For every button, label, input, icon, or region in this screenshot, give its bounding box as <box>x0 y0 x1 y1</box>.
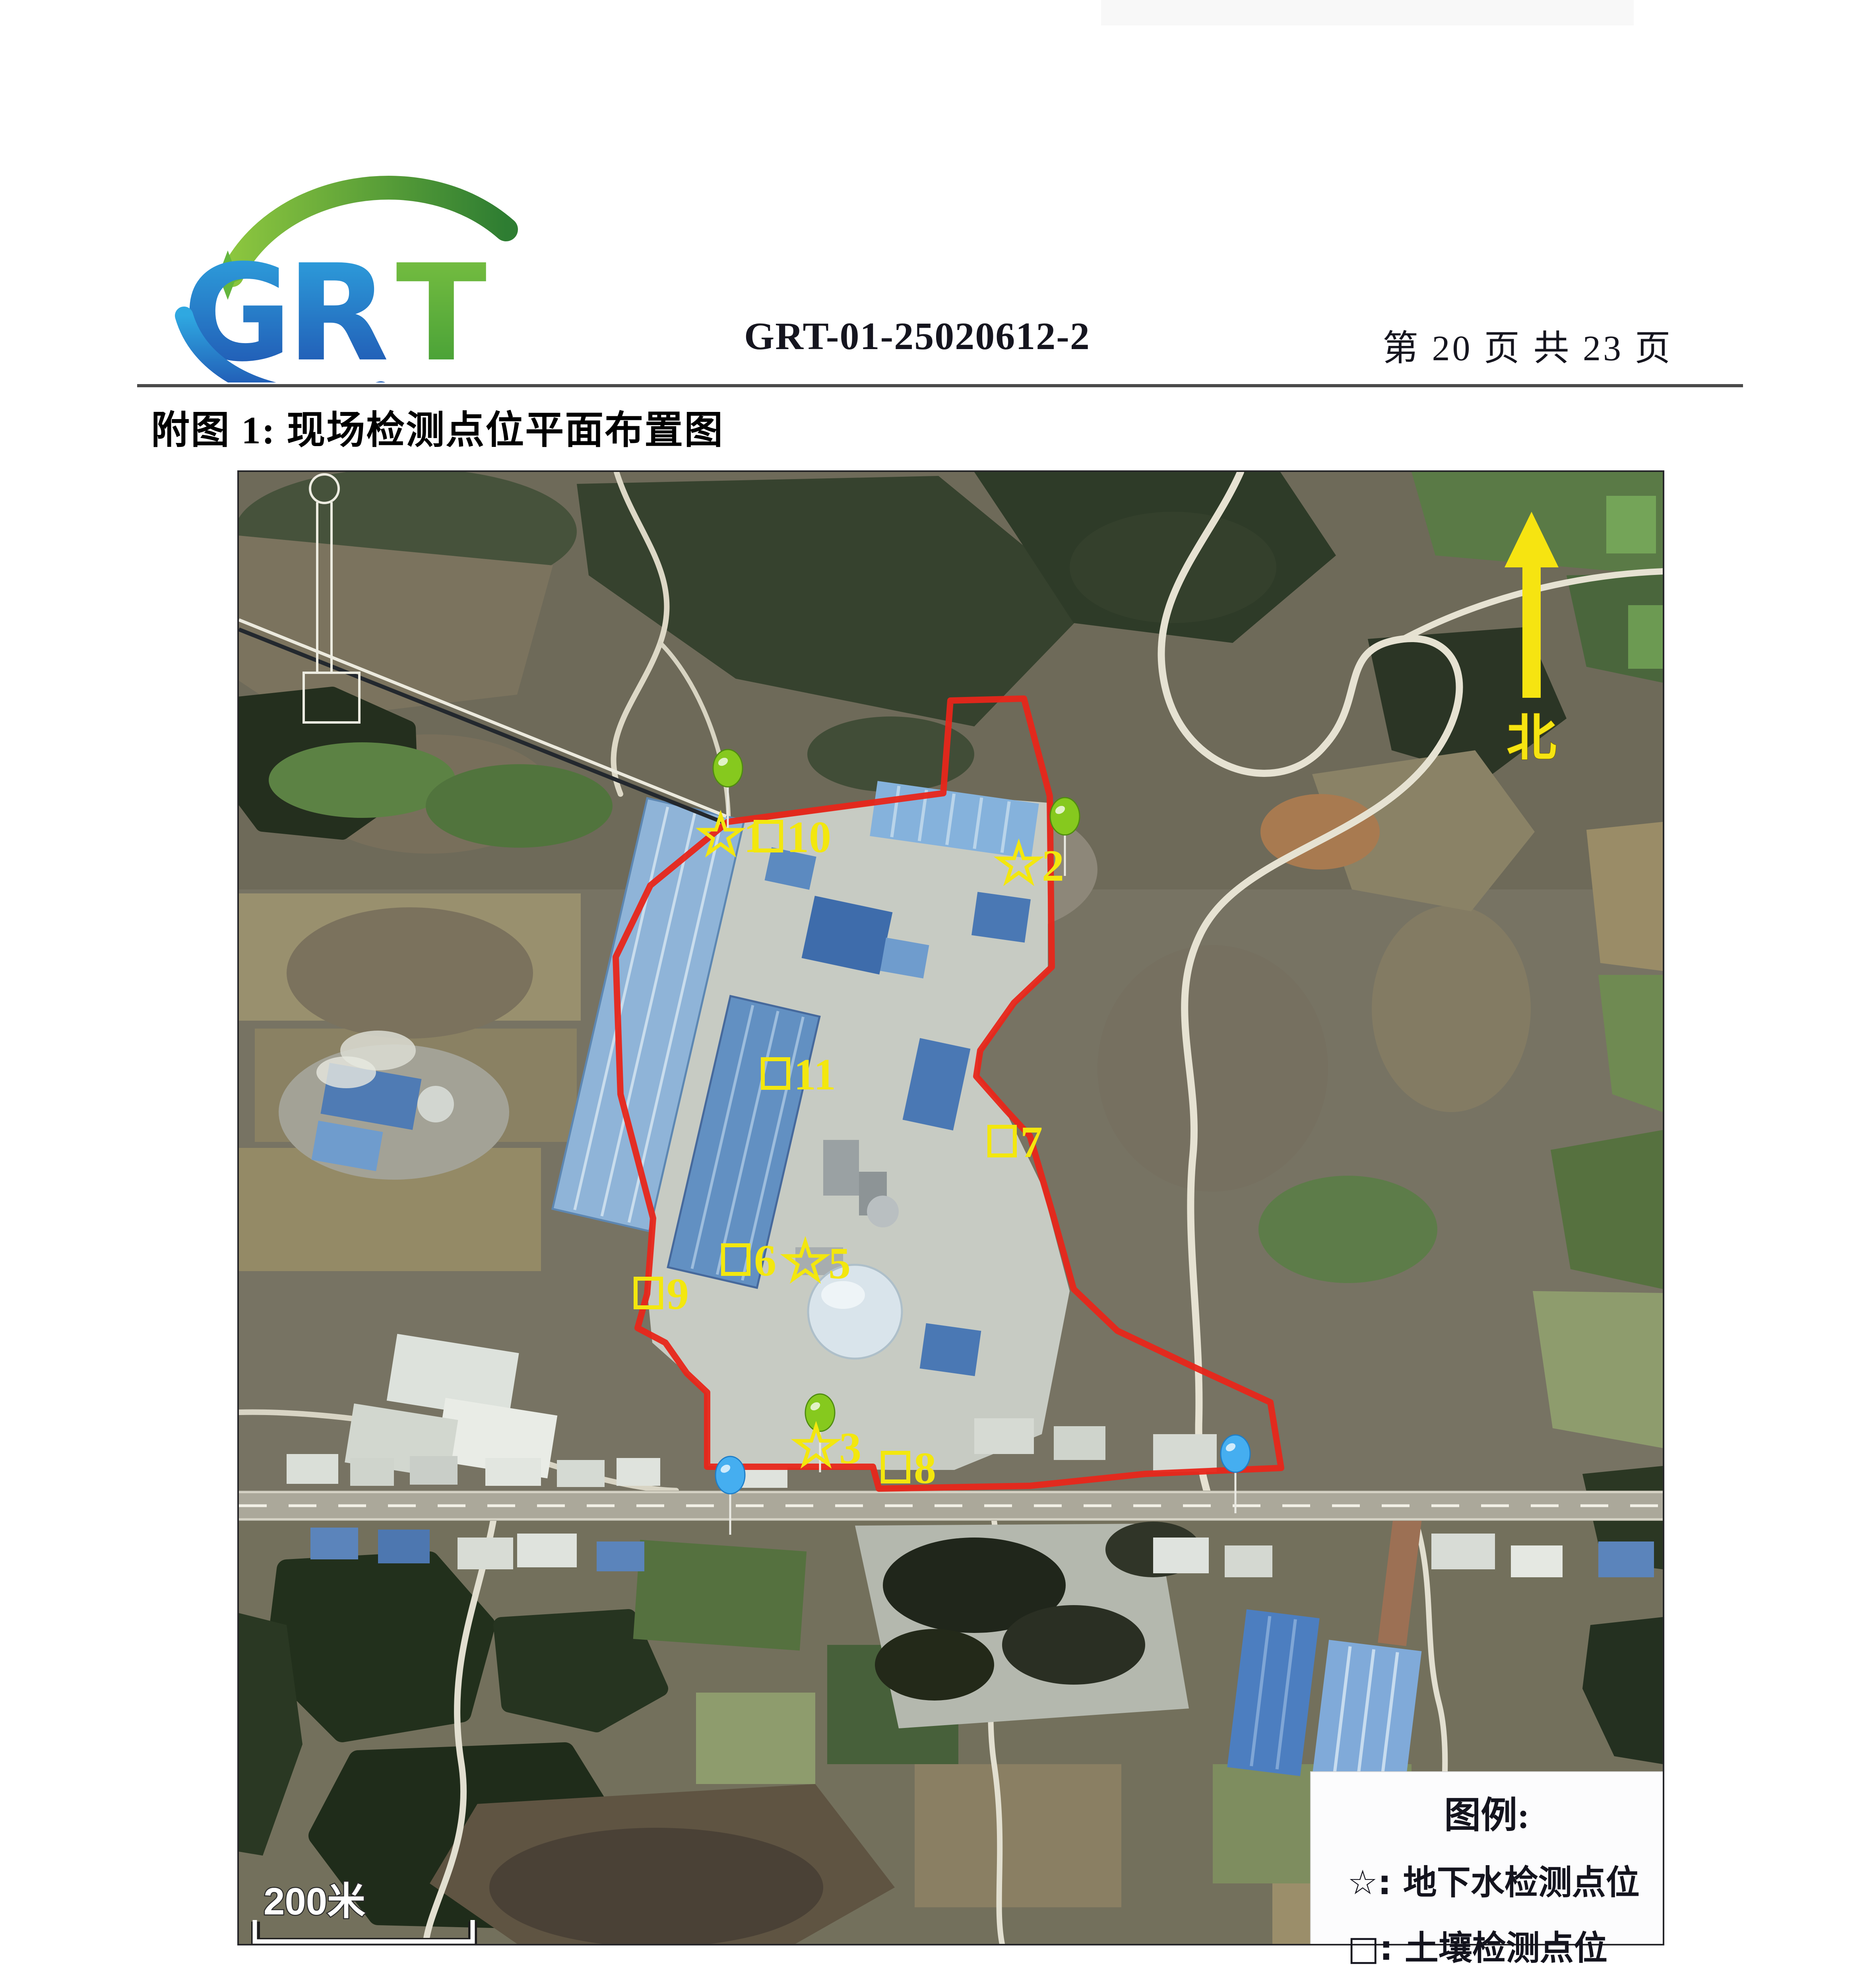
marker-label-5: 5 <box>828 1239 851 1288</box>
north-label: 北 <box>1507 711 1557 766</box>
doc-number: GRT-01-25020612-2 <box>744 314 1090 359</box>
map-legend: 图例: ☆: 地下水检测点位 □: 土壤检测点位 <box>1310 1771 1663 1944</box>
satellite-map: 北 200米 110211765938 <box>239 472 1663 1944</box>
green-pin-icon <box>713 749 743 787</box>
site-map-figure: 北 200米 110211765938 图例: ☆: 地下水检测点位 □: 土壤… <box>237 470 1664 1945</box>
legend-item-soil: □: 土壤检测点位 <box>1311 1921 1663 1970</box>
marker-label-6: 6 <box>754 1236 776 1285</box>
legend-title: 图例: <box>1311 1786 1663 1839</box>
marker-label-3: 3 <box>839 1424 861 1473</box>
marker-label-11: 11 <box>794 1050 836 1099</box>
marker-label-8: 8 <box>914 1444 936 1493</box>
blue-pin-icon <box>1221 1435 1250 1472</box>
green-pin-icon <box>1050 798 1080 835</box>
legend-item-groundwater: ☆: 地下水检测点位 <box>1311 1855 1663 1904</box>
marker-label-2: 2 <box>1042 841 1064 891</box>
scan-artifact-strip <box>1101 0 1634 25</box>
marker-label-7: 7 <box>1020 1118 1043 1167</box>
logo-text-t: T <box>396 236 487 382</box>
scale-label: 200米 <box>264 1880 365 1923</box>
highway <box>239 1491 1663 1521</box>
grt-logo: GR T <box>146 136 528 382</box>
green-pin-icon <box>805 1394 835 1431</box>
marker-label-9: 9 <box>667 1270 689 1319</box>
blue-pin-icon <box>715 1456 745 1494</box>
page-number-info: 第 20 页 共 23 页 <box>1382 319 1673 371</box>
figure-title: 附图 1: 现场检测点位平面布置图 <box>151 398 724 454</box>
marker-label-10: 10 <box>787 813 831 862</box>
report-page: GR T GRT-01-25020612-2 第 20 页 共 23 页 附图 … <box>0 0 1873 1988</box>
header-rule <box>137 384 1743 387</box>
